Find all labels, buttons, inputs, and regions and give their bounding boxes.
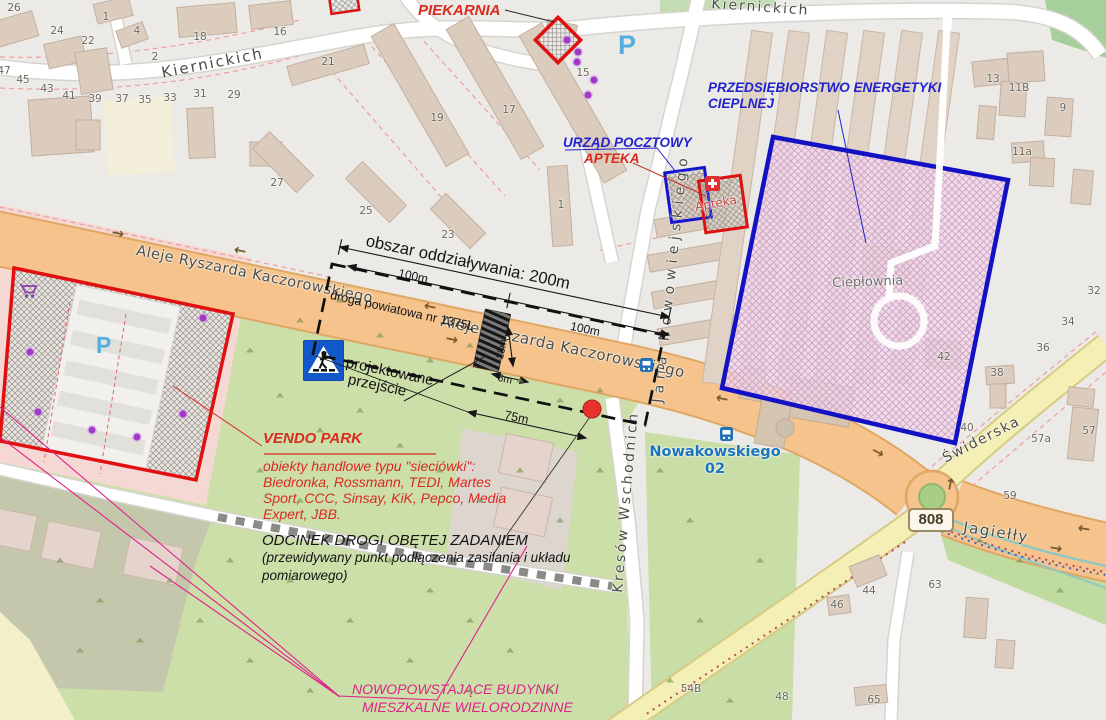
house-number: 63: [928, 579, 941, 591]
house-number: 39: [88, 93, 101, 105]
scrub-tuft-icon: [376, 333, 384, 338]
house-number: 26: [7, 2, 20, 14]
poi-label-cieplownia: Ciepłownia: [832, 274, 904, 291]
study-area-dashed-rect: [313, 264, 664, 425]
road-direction-arrow-icon: →: [1076, 519, 1092, 539]
house-number: 42: [937, 351, 950, 363]
scrub-tuft-icon: [466, 618, 474, 623]
house-number: 4: [134, 25, 141, 37]
scrub-tuft-icon: [406, 658, 414, 663]
poi-dot-icon: [564, 37, 571, 44]
house-number: 59: [1003, 490, 1016, 502]
house-number: 36: [1036, 342, 1049, 354]
street-label-kiernickich-west: Kiernickich: [160, 44, 265, 81]
pedestrian-crossing-sign: [303, 340, 344, 385]
annotation-odcinek-line3: pomiarowego): [262, 568, 348, 583]
house-number: 48: [775, 691, 788, 703]
label-droga-powiatowa: droga powiatowa nr 1375L: [329, 288, 476, 334]
scrub-tuft-icon: [596, 388, 604, 393]
house-number: 19: [430, 112, 443, 124]
dimension-label-18m: 18m: [494, 338, 510, 360]
house-number: 2: [152, 51, 159, 63]
house-number: 31: [193, 88, 206, 100]
house-number: 43: [40, 83, 53, 95]
scrub-tuft-icon: [1016, 558, 1024, 563]
scrub-tuft-icon: [76, 648, 84, 653]
poi-dot-icon: [591, 77, 598, 84]
house-number: 40: [960, 422, 973, 434]
house-number: 29: [227, 89, 240, 101]
poi-dot-icon: [27, 349, 34, 356]
annotation-apteka: APTEKA: [584, 151, 640, 166]
street-label-kresow-wschodnich: Kresów Wschodnich: [610, 411, 642, 594]
annotation-nowe-line1: NOWOPOWSTAJĄCE BUDYNKI: [352, 681, 559, 697]
house-number: 11B: [1009, 82, 1030, 94]
connection-point-marker: [583, 400, 601, 418]
road-direction-arrow-icon: →: [1048, 538, 1064, 558]
scrub-tuft-icon: [306, 688, 314, 693]
scrub-tuft-icon: [246, 658, 254, 663]
annotation-vendo-title: VENDO PARK: [263, 430, 362, 447]
poi-dot-icon: [134, 434, 141, 441]
dimension-label-6m: 6m: [497, 372, 514, 387]
dimension-label-obszar: obszar oddziaływania: 200m: [364, 232, 572, 294]
yellow-roads: [600, 345, 1106, 720]
annotation-energetyka-line2: CIEPLNEJ: [708, 96, 774, 111]
scrub-tuft-icon: [136, 638, 144, 643]
minor-roads: [0, 0, 1100, 720]
scrub-tuft-icon: [436, 468, 444, 473]
scrub-tuft-icon: [656, 468, 664, 473]
dimension-label-100m-b: 100m: [569, 319, 601, 339]
scrub-tuft-icon: [316, 428, 324, 433]
poi-dot-icon: [35, 409, 42, 416]
road-direction-arrow-icon: →: [444, 329, 460, 349]
street-label-swiderska: Świderska: [940, 414, 1023, 467]
poi-dot-icon: [585, 92, 592, 99]
scrub-tuft-icon: [336, 538, 344, 543]
house-number: 38: [990, 367, 1003, 379]
scrub-tuft-icon: [516, 468, 524, 473]
road-ref-badge: 808: [908, 508, 954, 532]
poi-dot-icon: [180, 411, 187, 418]
parking-icon: P: [618, 30, 636, 61]
house-number: 57a: [1031, 433, 1051, 445]
scrub-tuft-icon: [256, 468, 264, 473]
dimension-label-100m-a: 100m: [397, 266, 429, 286]
bus-stop-icon: [720, 427, 734, 446]
house-number: 13: [986, 73, 999, 85]
house-number: 1: [103, 11, 110, 23]
house-number: 32: [1087, 285, 1100, 297]
annotation-vendo-line2: Biedronka, Rossmann, TEDI, Martes: [263, 474, 491, 490]
annotation-piekarnia: PIEKARNIA: [418, 2, 501, 19]
stream: [645, 516, 1106, 715]
scrub-tuft-icon: [596, 468, 604, 473]
house-number: 22: [81, 35, 94, 47]
scrub-tuft-icon: [466, 343, 474, 348]
scrub-tuft-icon: [546, 688, 554, 693]
dimension-label-75m: 75m: [503, 408, 530, 427]
annotation-vendo-line4: Expert, JBB.: [263, 506, 341, 522]
scrub-tuft-icon: [286, 578, 294, 583]
house-number: 25: [359, 205, 372, 217]
poi-dot-icon: [89, 427, 96, 434]
scrub-tuft-icon: [276, 393, 284, 398]
map-canvas: Kiernickich Kiernickich Jana Nowowiejski…: [0, 0, 1106, 720]
scrub-tuft-icon: [166, 578, 174, 583]
house-number: 47: [0, 65, 11, 77]
house-number: 57: [1082, 425, 1095, 437]
house-number: 34: [1061, 316, 1074, 328]
scrub-tuft-icon: [466, 688, 474, 693]
road-direction-arrow-icon: →: [232, 241, 248, 261]
house-number: 17: [502, 104, 515, 116]
scrub-tuft-icon: [426, 358, 434, 363]
scrub-tuft-icon: [296, 498, 304, 503]
street-label-kiernickich-east: Kiernickich: [711, 0, 810, 19]
house-number: 1: [558, 199, 565, 211]
shopping-cart-icon: [20, 283, 40, 304]
house-number: 11a: [1012, 146, 1032, 158]
bus-stop-icon: [640, 358, 654, 377]
scrub-tuft-icon: [666, 678, 674, 683]
scrub-tuft-icon: [296, 318, 304, 323]
house-number: 23: [441, 229, 454, 241]
house-number: 54B: [681, 683, 702, 695]
poi-dot-icon: [575, 49, 582, 56]
house-number: 21: [321, 56, 334, 68]
scrub-tuft-icon: [226, 558, 234, 563]
road-direction-arrow-icon: →: [714, 389, 730, 409]
scrub-tuft-icon: [506, 648, 514, 653]
scrub-tuft-icon: [726, 698, 734, 703]
house-number: 33: [163, 92, 176, 104]
house-number: 37: [115, 93, 128, 105]
house-number: 45: [16, 74, 29, 86]
road-direction-arrow-icon: →: [940, 476, 960, 492]
scrub-tuft-icon: [96, 598, 104, 603]
house-number: 18: [193, 31, 206, 43]
scrub-tuft-icon: [756, 558, 764, 563]
scrub-tuft-icon: [686, 518, 694, 523]
road-direction-arrow-icon: →: [110, 223, 126, 243]
poi-dot-icon: [200, 315, 207, 322]
landuse-dashes: [0, 16, 1106, 718]
green-patch: [1045, 0, 1106, 58]
scrub-tuft-icon: [696, 618, 704, 623]
scrub-tuft-icon: [556, 398, 564, 403]
scrub-tuft-icon: [556, 518, 564, 523]
retail-zone: [0, 205, 252, 505]
house-number: 65: [867, 694, 880, 706]
annotation-nowe-line2: MIESZKALNE WIELORODZINNE: [362, 699, 573, 715]
bus-stop-name: Nowakowskiego: [630, 444, 800, 460]
scrub-tuft-icon: [516, 378, 524, 383]
scrub-tuft-icon: [246, 348, 254, 353]
street-label-jagielly: Jagiełły: [962, 518, 1030, 546]
pharmacy-cross-icon: [705, 176, 721, 196]
house-number: 16: [273, 26, 286, 38]
scrub-tuft-icon: [386, 558, 394, 563]
house-number: 9: [1060, 102, 1067, 114]
scrub-tuft-icon: [356, 408, 364, 413]
scrub-tuft-icon: [196, 618, 204, 623]
annotation-energetyka-line1: PRZEDSIĘBIORSTWO ENERGETYKI: [708, 80, 941, 95]
scrub-tuft-icon: [336, 298, 344, 303]
scrub-tuft-icon: [976, 538, 984, 543]
scrub-tuft-icon: [56, 558, 64, 563]
house-number: 15: [576, 67, 589, 79]
scrub-tuft-icon: [426, 588, 434, 593]
parking-icon: P: [96, 332, 111, 359]
scrub-tuft-icon: [1056, 588, 1064, 593]
scrub-tuft-icon: [396, 443, 404, 448]
scrub-tuft-icon: [476, 498, 484, 503]
poi-dot-icon: [574, 59, 581, 66]
annotation-odcinek-line1: ODCINEK DROGI OBĘTEJ ZADANIEM: [262, 532, 528, 549]
scrub-tuft-icon: [346, 618, 354, 623]
heating-plant-overlay: [722, 6, 1008, 443]
road-direction-arrow-icon: →: [868, 441, 888, 463]
annotation-urzad-pocztowy: URZĄD POCZTOWY: [563, 135, 692, 150]
house-number: 46: [830, 599, 843, 611]
house-number: 44: [862, 585, 875, 597]
construction-area: [0, 474, 212, 692]
house-number: 27: [270, 177, 283, 189]
house-number: 41: [62, 90, 75, 102]
house-number: 35: [138, 94, 151, 106]
chimney-pipe: [889, 6, 948, 300]
house-number: 24: [50, 25, 63, 37]
annotation-odcinek-line2: (przewidywany punkt podłączenia zasilani…: [262, 550, 570, 565]
